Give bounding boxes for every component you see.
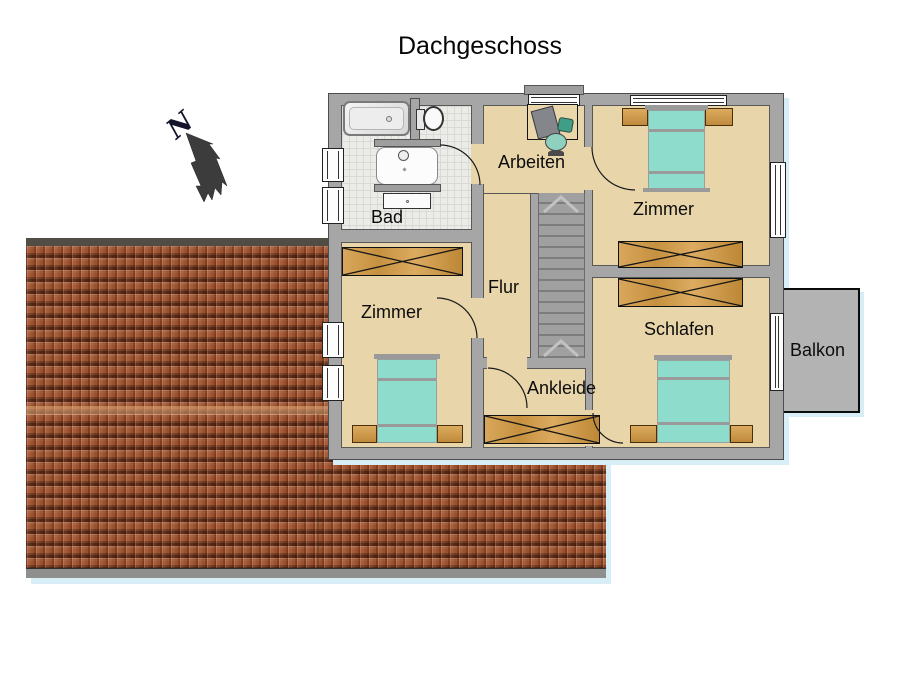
- nightstand: [705, 108, 733, 126]
- door-opening-zimmer-top: [584, 147, 593, 190]
- room-flur-floor: [483, 193, 531, 358]
- bed-zimmer-left: [377, 359, 437, 443]
- bed-zimmer-top: [648, 110, 705, 190]
- compass-north-label: N: [161, 106, 200, 146]
- window-zimmer-left-2: [322, 365, 344, 401]
- washbasin-counter-top: [374, 139, 441, 147]
- room-label-flur: Flur: [488, 277, 519, 298]
- office-chair: [545, 133, 567, 151]
- room-label-arbeiten: Arbeiten: [498, 152, 565, 173]
- toilet: [423, 106, 444, 131]
- window-zimmer-left-1: [322, 322, 344, 358]
- nightstand: [730, 425, 753, 443]
- nightstand: [630, 425, 657, 443]
- wardrobe-schlafen: [618, 278, 743, 307]
- bed-footboard: [643, 188, 710, 192]
- page-title: Dachgeschoss: [340, 32, 620, 61]
- window-bad-2: [322, 187, 344, 224]
- roof-seam-horizontal: [26, 406, 328, 415]
- window-zimmer-east: [770, 162, 786, 238]
- washbasin-counter-bottom: [374, 184, 441, 192]
- bathtub: [343, 101, 410, 136]
- room-label-schlafen: Schlafen: [644, 319, 714, 340]
- roof-eave: [26, 568, 606, 578]
- nightstand: [352, 425, 377, 443]
- roof-seam-vertical: [317, 414, 319, 568]
- bed-schlafen: [657, 360, 730, 443]
- washbasin: [376, 147, 438, 185]
- nightstand: [622, 108, 648, 126]
- room-label-ankleide: Ankleide: [527, 378, 596, 399]
- compass-arrow-icon: [186, 133, 227, 202]
- desk-plant: [557, 117, 574, 133]
- wardrobe-ankleide: [484, 415, 600, 444]
- balcony-door: [770, 313, 784, 391]
- room-label-zimmer-left: Zimmer: [361, 302, 422, 323]
- door-opening-bad: [471, 144, 484, 184]
- door-opening-zimmer-left: [471, 298, 484, 338]
- room-label-bad: Bad: [371, 207, 403, 228]
- wardrobe-zimmer-top: [618, 241, 743, 268]
- nightstand: [437, 425, 463, 443]
- room-label-balkon: Balkon: [790, 340, 845, 361]
- door-opening-ankleide: [487, 357, 527, 369]
- wardrobe-zimmer-left: [342, 247, 463, 276]
- staircase: [538, 193, 585, 358]
- window-bad-1: [322, 148, 344, 182]
- floorplan-canvas: Dachgeschoss N: [0, 0, 921, 691]
- room-label-zimmer-top: Zimmer: [633, 199, 694, 220]
